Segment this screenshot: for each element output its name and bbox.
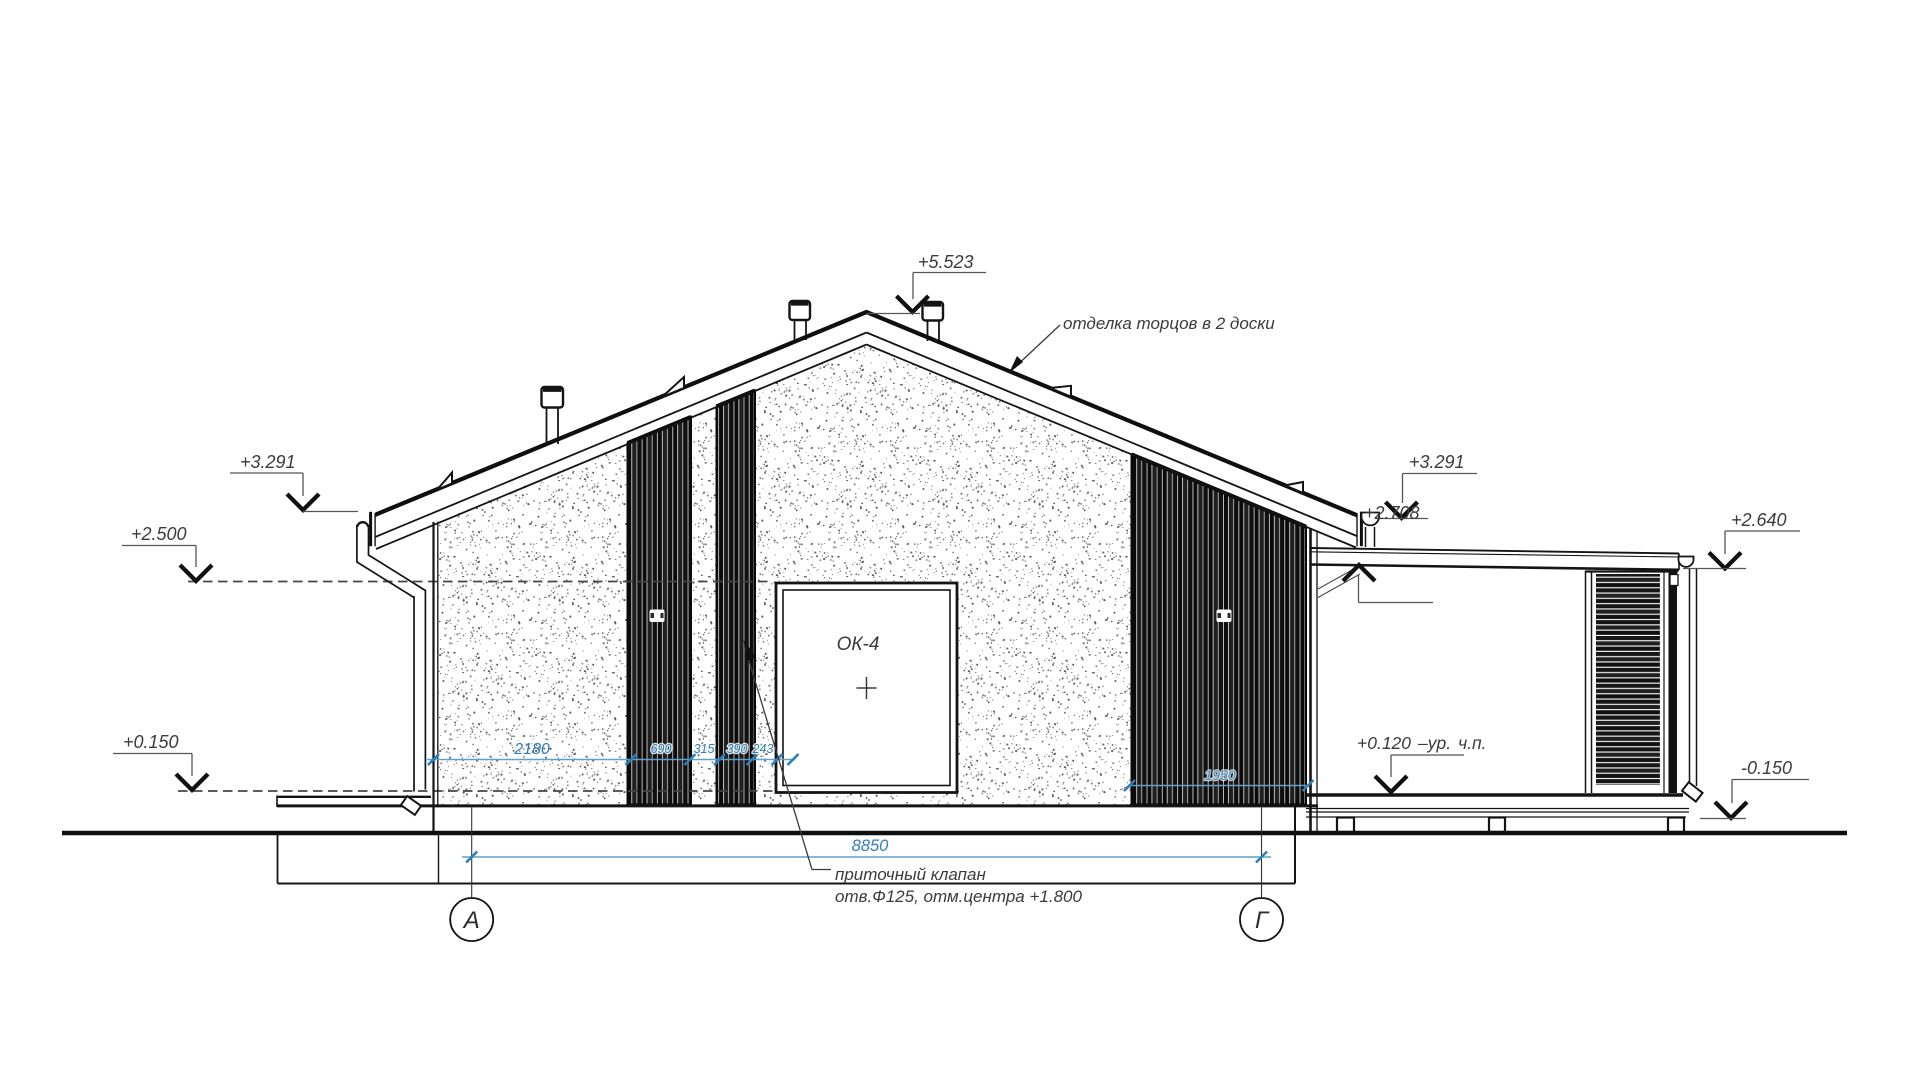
svg-text:отделка торцов в 2 доски: отделка торцов в 2 доски: [1063, 314, 1275, 333]
svg-text:+0.150: +0.150: [123, 732, 179, 752]
svg-text:Г: Г: [1255, 907, 1270, 934]
svg-text:А: А: [462, 907, 480, 934]
svg-text:+2.708: +2.708: [1364, 503, 1420, 523]
svg-text:390: 390: [727, 742, 748, 756]
svg-text:-0.150: -0.150: [1741, 758, 1792, 778]
svg-text:+3.291: +3.291: [240, 452, 296, 472]
svg-text:+0.120 –ур. ч.п.: +0.120 –ур. ч.п.: [1357, 733, 1487, 753]
svg-text:1950: 1950: [1204, 767, 1235, 783]
svg-text:+5.523: +5.523: [918, 252, 974, 272]
svg-text:+3.291: +3.291: [1409, 452, 1465, 472]
svg-text:315: 315: [694, 742, 715, 756]
svg-text:ОК-4: ОК-4: [837, 634, 880, 655]
svg-text:2180: 2180: [513, 741, 550, 758]
svg-text:8850: 8850: [852, 837, 890, 855]
svg-text:приточный клапан: приточный клапан: [835, 865, 986, 884]
svg-text:+2.640: +2.640: [1731, 510, 1787, 530]
svg-text:+2.500: +2.500: [131, 524, 187, 544]
svg-text:отв.Ф125, отм.центра +1.800: отв.Ф125, отм.центра +1.800: [835, 887, 1082, 906]
svg-text:690: 690: [651, 742, 672, 756]
svg-text:243: 243: [752, 742, 774, 756]
